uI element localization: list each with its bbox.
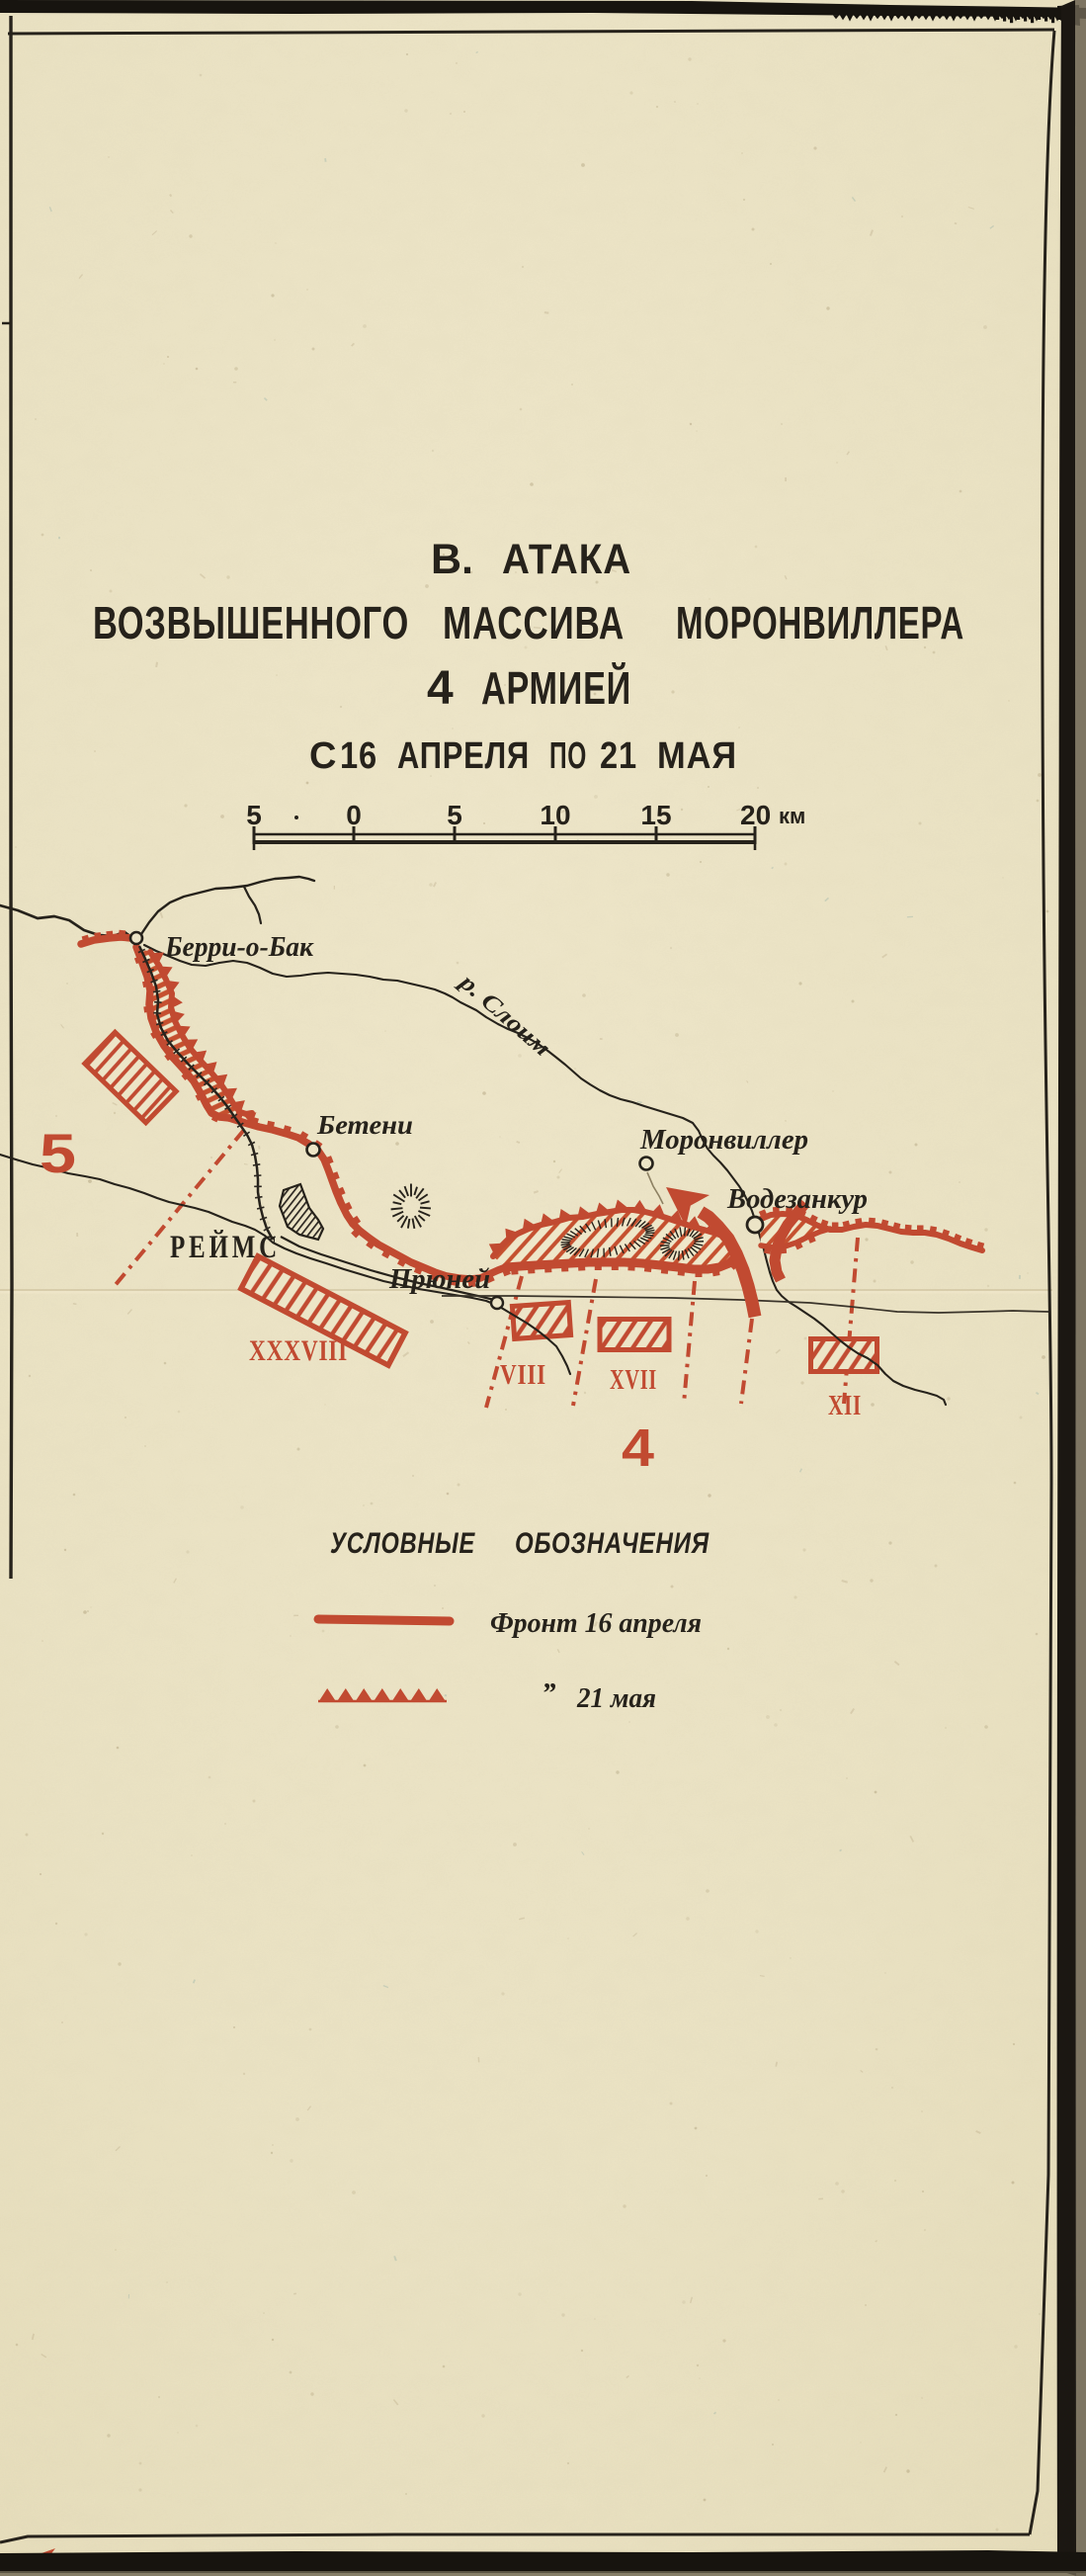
svg-text:5: 5 [447, 800, 462, 830]
svg-text:Прюней: Прюней [388, 1264, 490, 1295]
svg-text:С: С [309, 735, 336, 777]
svg-text:ОБОЗНАЧЕНИЯ: ОБОЗНАЧЕНИЯ [515, 1527, 710, 1560]
svg-text:”: ” [542, 1677, 556, 1709]
svg-text:МОРОНВИЛЛЕРА: МОРОНВИЛЛЕРА [676, 597, 964, 648]
svg-text:15: 15 [640, 800, 671, 830]
svg-text:VIII: VIII [500, 1360, 546, 1391]
svg-text:ПО: ПО [549, 735, 587, 777]
svg-text:АТАКА: АТАКА [502, 536, 631, 583]
svg-text:16: 16 [340, 735, 377, 777]
svg-text:4: 4 [622, 1418, 654, 1478]
svg-text:УСЛОВНЫЕ: УСЛОВНЫЕ [330, 1527, 475, 1560]
svg-text:XII: XII [828, 1391, 862, 1421]
svg-text:5: 5 [246, 800, 262, 830]
svg-text:АПРЕЛЯ: АПРЕЛЯ [397, 735, 530, 777]
svg-text:20: 20 [740, 800, 771, 830]
svg-text:В.: В. [431, 536, 473, 583]
svg-text:10: 10 [540, 800, 570, 830]
svg-text:4: 4 [427, 662, 454, 715]
svg-text:21: 21 [600, 735, 637, 777]
svg-text:АРМИЕЙ: АРМИЕЙ [481, 662, 631, 714]
svg-text:Моронвиллер: Моронвиллер [639, 1125, 808, 1156]
svg-text:Фронт 16 апреля: Фронт 16 апреля [490, 1607, 702, 1639]
svg-text:км: км [779, 804, 805, 828]
svg-text:МАССИВА: МАССИВА [443, 597, 625, 648]
svg-text:5: 5 [40, 1122, 76, 1184]
svg-text:ВОЗВЫШЕННОГО: ВОЗВЫШЕННОГО [93, 597, 409, 648]
svg-text:Водезанкур: Водезанкур [726, 1184, 868, 1215]
svg-text:РЕЙМС: РЕЙМС [170, 1229, 281, 1265]
svg-text:Берри-о-Бак: Берри-о-Бак [164, 932, 314, 963]
svg-text:21 мая: 21 мая [576, 1682, 656, 1714]
svg-text:XXXVIII: XXXVIII [249, 1334, 348, 1367]
svg-text:МАЯ: МАЯ [657, 735, 737, 777]
svg-text:Бетени: Бетени [316, 1110, 413, 1140]
svg-text:0: 0 [346, 800, 362, 830]
svg-text:XVII: XVII [610, 1365, 657, 1396]
